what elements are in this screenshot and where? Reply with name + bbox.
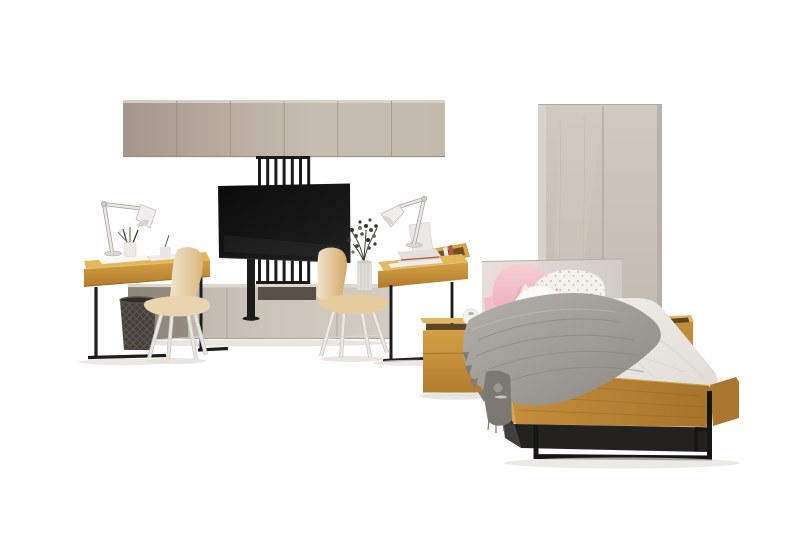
wall-cabinet-row — [123, 100, 445, 157]
sideboard-open-recess — [258, 287, 316, 300]
furniture-scene — [0, 0, 800, 533]
product-photo — [0, 0, 800, 533]
underbed-panel — [514, 424, 712, 452]
chair-left-seat — [144, 296, 210, 317]
chair-right-seat — [318, 295, 388, 314]
blanket-pom — [494, 384, 503, 393]
laptop-screen — [409, 223, 433, 255]
sideboard-shadow — [126, 340, 390, 347]
bed-foot-corner — [710, 377, 739, 426]
